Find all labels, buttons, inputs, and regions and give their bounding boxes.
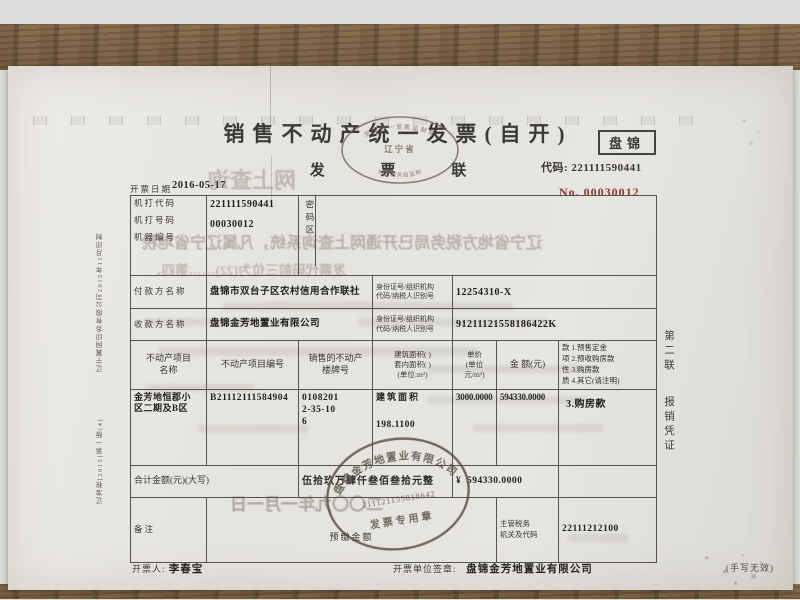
- copy-number-vertical: 第二联: [661, 330, 676, 374]
- password-area-label: 密码区: [299, 196, 316, 266]
- machine-labels-cell: 机打代码 机打号码 机器编号: [131, 196, 207, 276]
- seal-company-name: 盘锦金芳地置业有限公司: [326, 440, 461, 498]
- issuing-unit-label: 开票单位签章:: [393, 564, 457, 574]
- payer-id: 12254310-X: [456, 286, 653, 299]
- photo-of-invoice: { "colors": { "invoice_no_red": "#8a3a2c…: [0, 0, 800, 600]
- machine-no-label: 机打号码: [134, 215, 203, 226]
- seal-type: 发票专用章: [368, 509, 435, 532]
- stain: [696, 544, 768, 590]
- invoice-code: 代码: 221111590441: [541, 159, 642, 175]
- password-area-cell: 密码区: [299, 196, 657, 276]
- payee-name: 盘锦金芳地置业有限公司: [210, 318, 369, 330]
- payee-id: 91211121558186422K: [456, 318, 653, 331]
- desk-wood-top: [0, 24, 800, 70]
- bleed-ghost-text: 网上查询: [208, 163, 296, 195]
- payer-label: 付款方名称: [134, 286, 203, 297]
- cell-project-no: B21112111584904: [207, 389, 299, 465]
- issuer-block: 开票人: 李春宝: [132, 561, 203, 576]
- seal-number: 211121155818642: [362, 489, 437, 509]
- supervision-bottom-text: 地方税务局监制: [377, 167, 423, 179]
- col-payment-nature: 款 1.预售定金 项 2.预收购房款 性 3.购房款 质 4.其它(请注明): [559, 341, 657, 390]
- col-project-no: 不动产项目编号: [207, 341, 299, 390]
- machine-no-value: 00030012: [210, 218, 295, 231]
- machine-id-label: 机器编号: [134, 232, 203, 243]
- supervision-province: 辽宁省: [384, 144, 416, 154]
- tax-supervision-stamp: 全国统一发票监制章 辽宁省 地方税务局监制: [338, 112, 462, 188]
- copy-purpose-vertical: 报销凭证: [661, 396, 676, 454]
- cell-amount: 594330.0000: [497, 389, 559, 465]
- stain: [731, 108, 775, 152]
- tax-org-label-line1: 主管税务: [500, 519, 555, 529]
- id-label-line2: 代码/纳税人识别号: [376, 292, 449, 301]
- col-project-name: 不动产项目 名称: [131, 341, 207, 390]
- col-amount: 金 额(元): [497, 341, 559, 390]
- svg-text:地方税务局监制: 地方税务局监制: [377, 167, 423, 179]
- id-label-line2: 代码/纳税人识别号: [376, 325, 449, 334]
- payee-label: 收款方名称: [134, 319, 203, 330]
- id-label-line1: 身份证号/组织机构: [376, 315, 449, 324]
- bleed-vertical-line: [270, 66, 271, 126]
- svg-text:全国统一发票监制章: 全国统一发票监制章: [363, 123, 438, 138]
- remark-label: 备注: [134, 524, 203, 535]
- table-row: 收款方名称 盘锦金芳地置业有限公司 身份证号/组织机构 代码/纳税人识别号 91…: [131, 309, 657, 341]
- cell-payment-nature: 3.购房款: [559, 389, 657, 465]
- issuing-unit-block: 开票单位签章: 盘锦金芳地置业有限公司: [393, 561, 593, 576]
- total-label: 合计金额(元)(大写): [134, 475, 295, 487]
- table-row: 付款方名称 盘锦市双台子区农村信用合作联社 身份证号/组织机构 代码/纳税人识别…: [131, 276, 657, 309]
- city-box: 盘锦: [598, 130, 656, 155]
- supervision-ring-text: 全国统一发票监制章: [363, 123, 438, 138]
- issuer-name: 李春宝: [169, 564, 204, 575]
- printer-imprint: 辽宁翼网印务有限公司2015年11月印制: [96, 232, 106, 372]
- tax-org-label-line2: 机关及代码: [500, 530, 555, 540]
- cell-project-name: 金芳地恒郡小 区二期及B区: [131, 389, 207, 465]
- table-header-row: 不动产项目 名称 不动产项目编号 销售的不动产 楼牌号 建筑面积( ) 套内面积…: [131, 341, 657, 390]
- invoice-code-value: 221111590441: [571, 162, 641, 174]
- table-row: 机打代码 机打号码 机器编号 221111590441 00030012 密码区: [131, 196, 657, 276]
- svg-text:盘锦金芳地置业有限公司: 盘锦金芳地置业有限公司: [326, 440, 461, 498]
- machine-values-cell: 221111590441 00030012: [207, 196, 299, 276]
- tax-org-code: 22111212100: [562, 523, 653, 535]
- issuing-unit-name: 盘锦金芳地置业有限公司: [466, 564, 593, 575]
- issue-date-label: 开票日期: [130, 183, 172, 195]
- payer-name: 盘锦市双台子区农村信用合作联社: [210, 286, 369, 298]
- company-invoice-seal: 盘锦金芳地置业有限公司 211121155818642 发票专用章: [309, 418, 487, 569]
- total-row-blank: [559, 465, 657, 497]
- issuer-label: 开票人:: [132, 564, 166, 574]
- invoice-paper: 销售不动产统一发票(自开) 发 票 联 盘锦 代码: 221111590441 …: [8, 66, 793, 590]
- id-label-line1: 身份证号/组织机构: [376, 283, 449, 292]
- invoice-code-label: 代码:: [541, 162, 568, 174]
- col-building-no: 销售的不动产 楼牌号: [299, 341, 373, 390]
- print-approval-number: 辽准税[2015]第一版(4): [96, 418, 106, 504]
- col-unit-price: 单价 (单位 元/m²): [453, 341, 497, 390]
- machine-code-label: 机打代码: [134, 198, 203, 209]
- machine-code-value: 221111590441: [210, 198, 295, 211]
- col-area: 建筑面积( ) 套内面积( ) (单位:m²): [373, 341, 453, 390]
- password-area-blank: [316, 196, 656, 266]
